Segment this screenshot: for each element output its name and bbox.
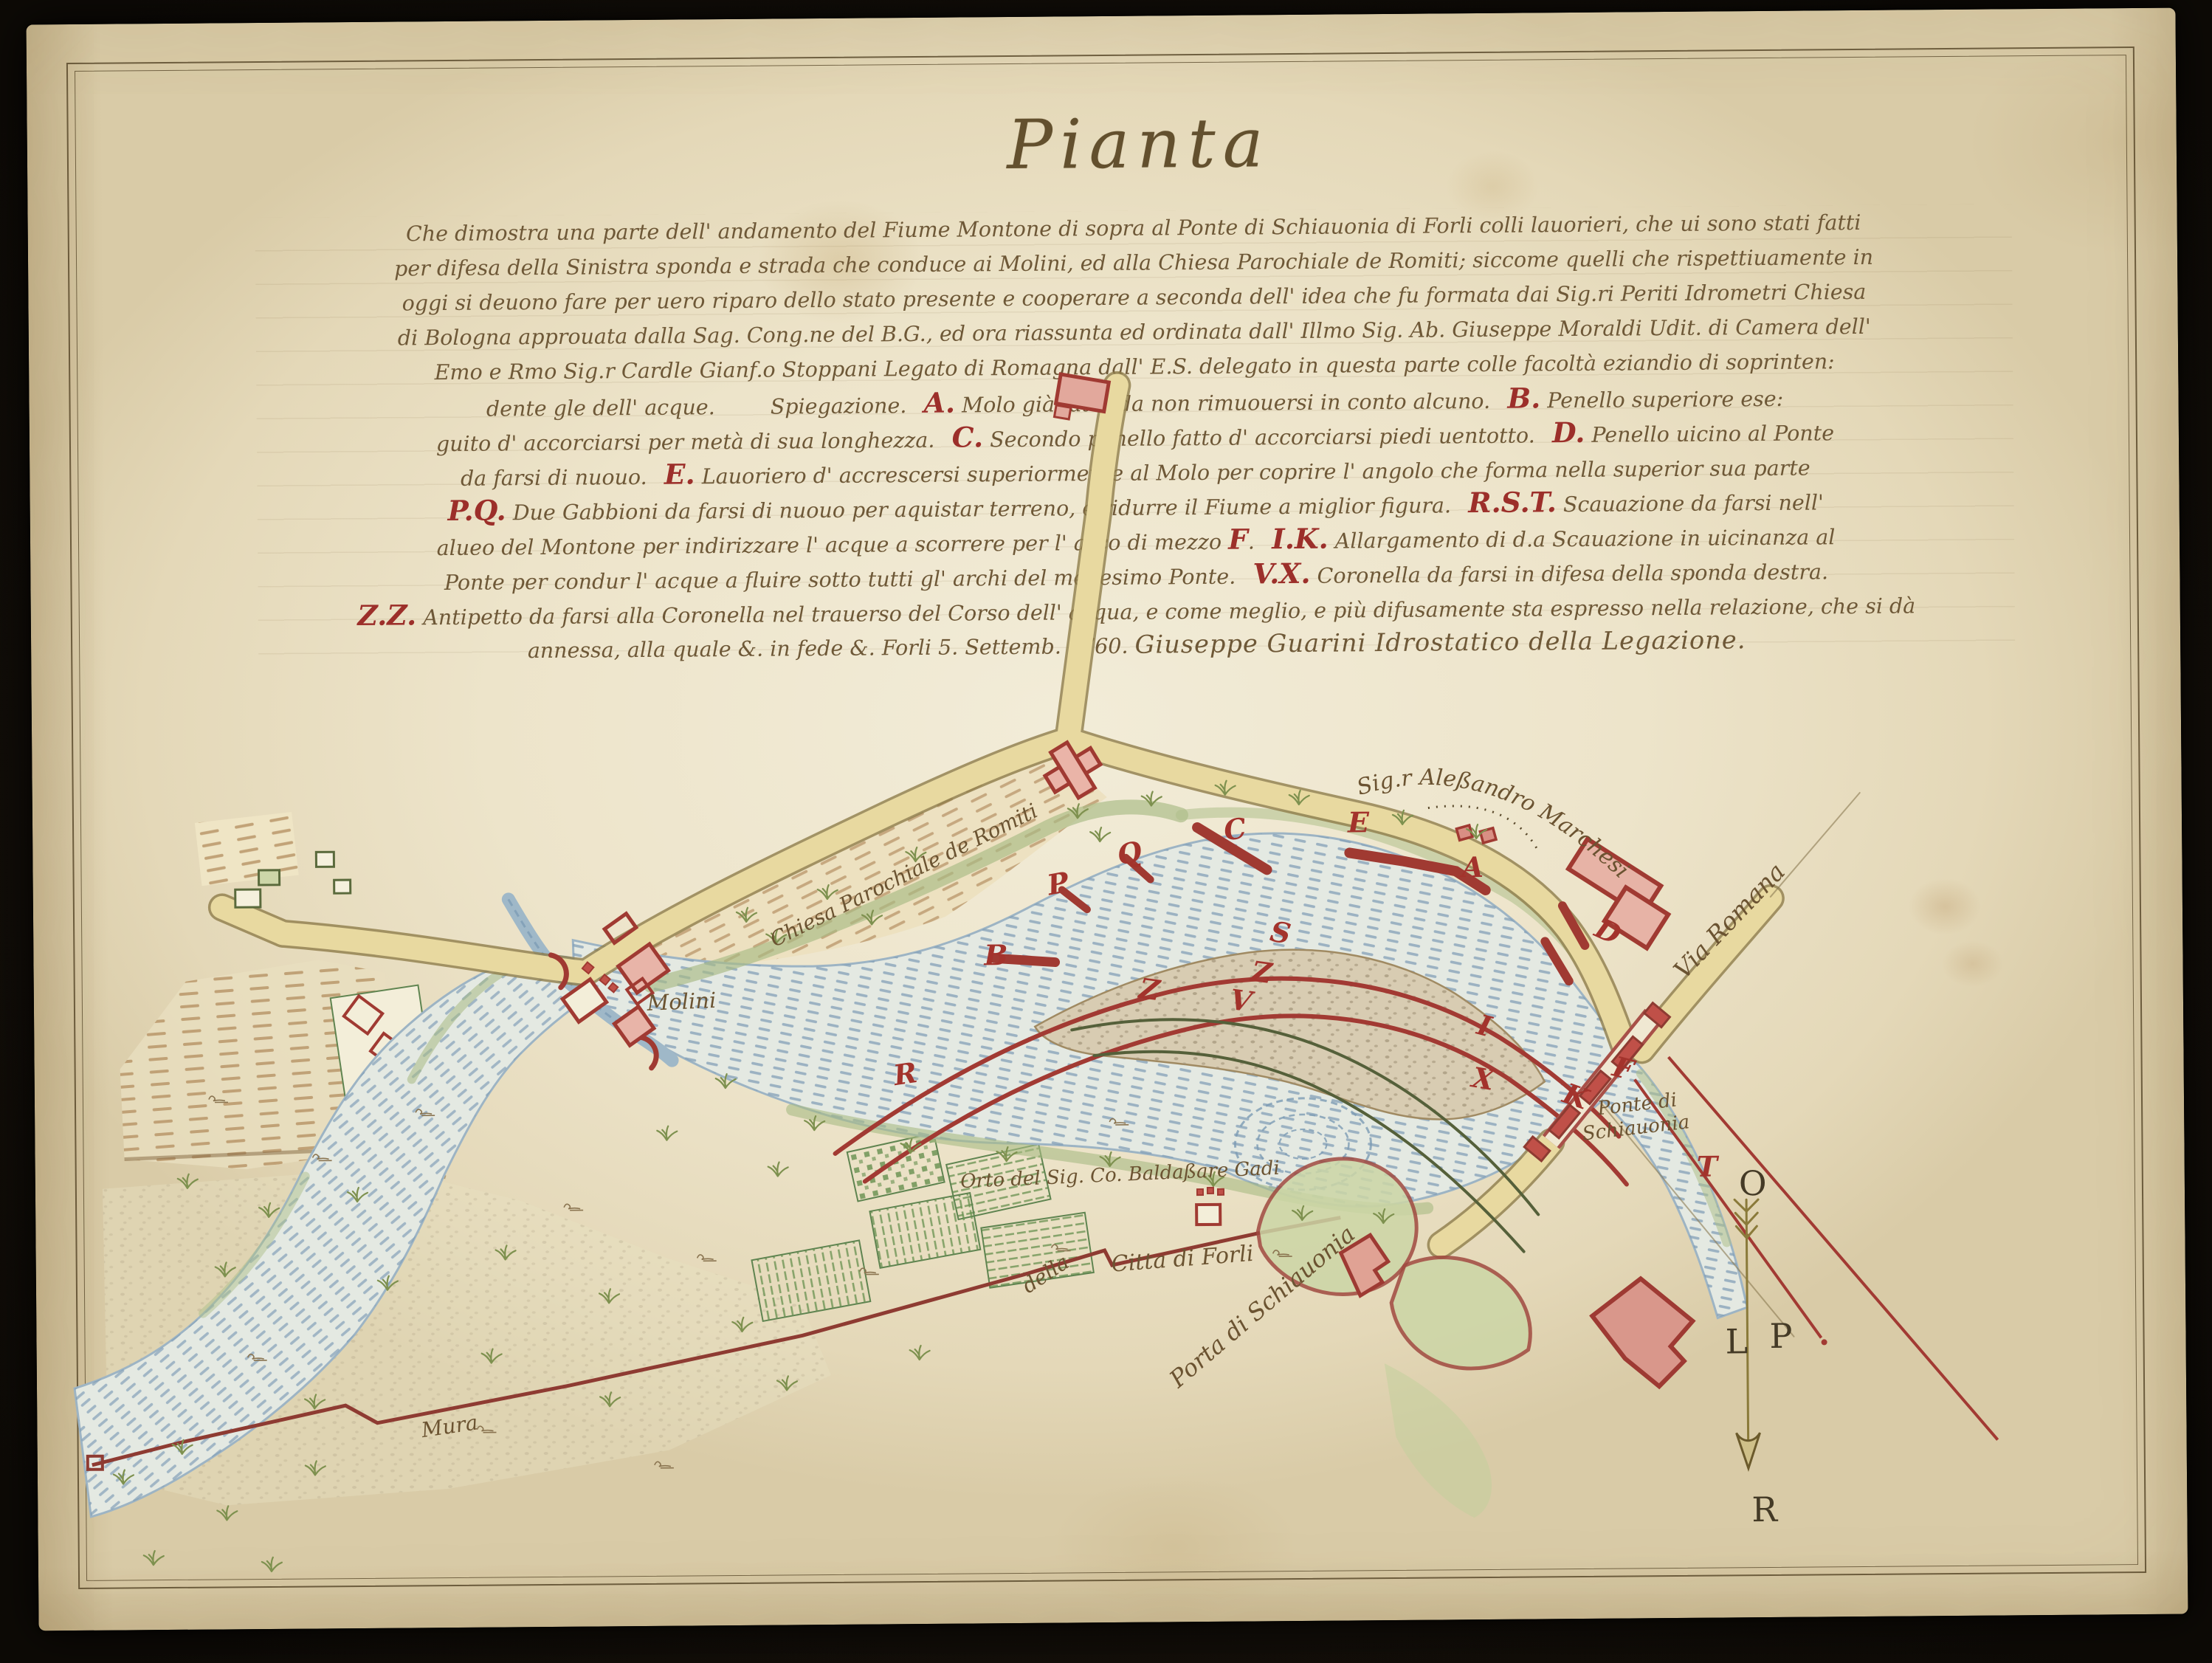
map-letter-B: B bbox=[983, 938, 1007, 971]
map-canvas: Pianta Che dimostra una parte dell' anda… bbox=[0, 0, 2212, 1663]
photo-background: { "title": "Pianta", "manuscript": { "li… bbox=[0, 0, 2212, 1654]
label-marchesi: Sig.r Aleßandro Marchesi lau.o nudo bbox=[0, 0, 1634, 896]
map-letter-R: R bbox=[1751, 1490, 1778, 1529]
map-letter-L: L bbox=[1725, 1321, 1748, 1361]
map-letter-T: T bbox=[1697, 1149, 1720, 1182]
paper-sheet: Pianta Che dimostra una parte dell' anda… bbox=[26, 8, 2188, 1631]
church-romiti bbox=[1045, 743, 1101, 799]
map-letter-O: O bbox=[1739, 1163, 1767, 1203]
farm-top-road bbox=[1054, 374, 1109, 420]
vineyard-block-upper-left bbox=[195, 812, 299, 886]
map-drawing: Chiesa Parochiale de Romiti Sig.r Aleßan… bbox=[0, 0, 2212, 1663]
orto-small-building bbox=[1196, 1188, 1224, 1225]
map-letter-Q: Q bbox=[1114, 834, 1145, 871]
map-letter-E: E bbox=[1347, 805, 1370, 839]
label-citta-di-forli: Citta di Forli bbox=[1110, 1241, 1254, 1278]
map-letter-A: A bbox=[1459, 850, 1484, 884]
label-molini: Molini bbox=[646, 988, 717, 1016]
projected-road-lines bbox=[1635, 1055, 1998, 1443]
map-letter-P: P bbox=[1769, 1316, 1792, 1356]
large-red-building-southeast bbox=[1592, 1278, 1693, 1387]
map-letter-R: R bbox=[891, 1056, 920, 1092]
map-letter-P: P bbox=[1044, 865, 1072, 902]
